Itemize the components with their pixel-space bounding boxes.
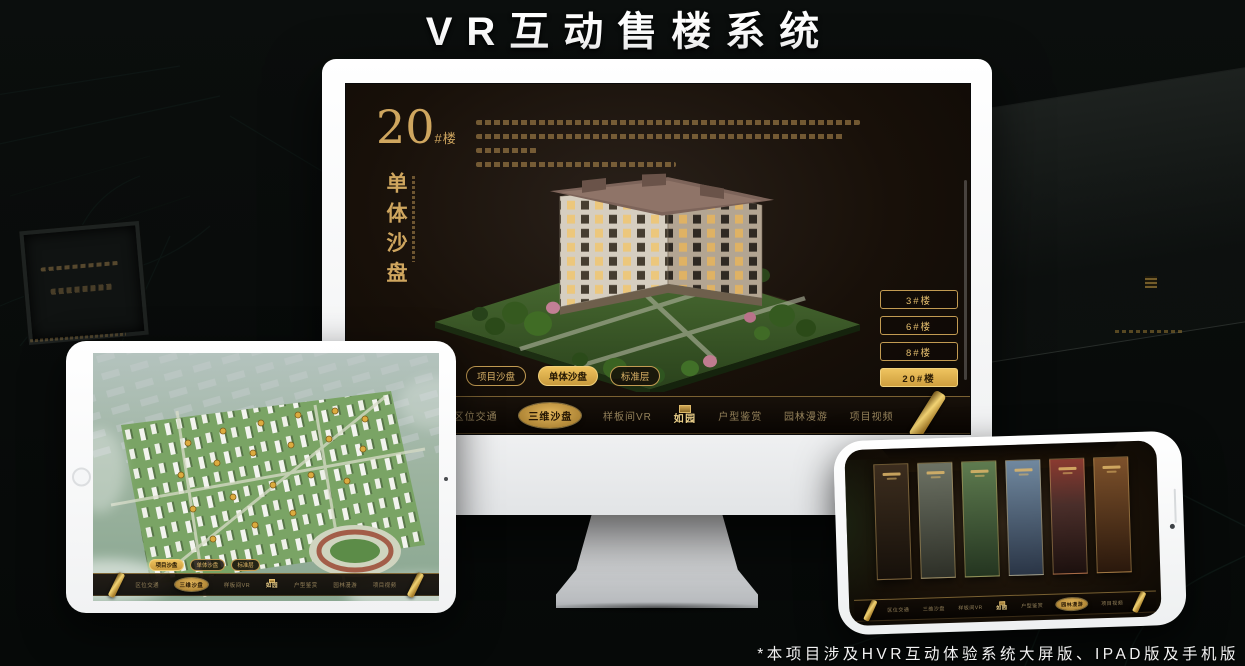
screen-reflection: [964, 180, 967, 380]
phone-brand-logo: 如园: [996, 601, 1008, 612]
mode-title-vertical: 单体沙盘: [380, 172, 410, 291]
tablet-nav-item-floorplan[interactable]: 户型鉴赏: [294, 581, 318, 589]
card-caption-decor: [974, 475, 984, 477]
logo-text: 如园: [266, 584, 278, 590]
tablet-subtab-standard-floor[interactable]: 标准层: [231, 559, 261, 571]
phone-camera-icon: [1170, 524, 1175, 529]
tablet-nav-item-3d-sandbox[interactable]: 三维沙盘: [175, 578, 208, 591]
monitor-stand-shadow: [538, 602, 776, 614]
phone-nav-item-3d-sandbox[interactable]: 三维沙盘: [923, 605, 945, 613]
phone-nav-item-project-video[interactable]: 项目视频: [1101, 599, 1123, 607]
description-line: [476, 134, 845, 139]
monitor-nav-item-garden-tour[interactable]: 园林漫游: [784, 408, 828, 423]
tablet-nav-item-showroom-vr[interactable]: 样板间VR: [224, 581, 250, 589]
tablet-screen: 项目沙盘 单体沙盘 标准层 区位交通 三维沙盘 样板间VR 如园 户型鉴赏 园林…: [93, 353, 439, 601]
footnote-text: *本项目涉及HVR互动体验系统大屏版、IPAD版及手机版: [757, 642, 1239, 664]
subtab-project-sandbox[interactable]: 项目沙盘: [466, 366, 526, 386]
tablet-scroll-handle-left-icon[interactable]: [107, 571, 125, 597]
logo-seal-icon: [679, 405, 691, 414]
card-caption-decor: [926, 471, 944, 474]
card-caption-decor: [930, 476, 940, 478]
card-caption-decor: [1062, 472, 1072, 474]
panorama-card-kitchen[interactable]: [917, 462, 956, 579]
building-3d-model[interactable]: [410, 142, 880, 392]
panorama-card-building[interactable]: [1005, 459, 1044, 576]
stadium: [309, 525, 401, 577]
card-caption-decor: [1018, 473, 1028, 475]
phone-scroll-handle-left-icon[interactable]: [864, 599, 878, 622]
aerial-masterplan-view[interactable]: [93, 353, 439, 601]
panorama-card-facade[interactable]: [1049, 458, 1088, 575]
subtab-single-sandbox[interactable]: 单体沙盘: [538, 366, 598, 386]
monitor-stand: [556, 512, 758, 608]
card-caption-decor: [882, 472, 900, 475]
floor-button-3[interactable]: 3#楼: [880, 290, 958, 309]
monitor-subtab-row: 项目沙盘 单体沙盘 标准层: [466, 366, 660, 386]
promo-canvas: VR互动售楼系统 20#楼 单体沙盘: [0, 0, 1245, 666]
tablet-nav-item-location-traffic[interactable]: 区位交通: [135, 581, 159, 589]
phone-nav-item-location-traffic[interactable]: 区位交通: [887, 606, 909, 614]
card-caption-decor: [1106, 471, 1116, 473]
tablet-camera-icon: [444, 477, 448, 481]
phone-nav-item-garden-tour[interactable]: 园林漫游: [1056, 598, 1087, 611]
tablet-subtab-row: 项目沙盘 单体沙盘 标准层: [149, 559, 260, 571]
panorama-card-shelves[interactable]: [1093, 456, 1132, 573]
tablet-subtab-single-sandbox[interactable]: 单体沙盘: [190, 559, 225, 571]
card-caption-decor: [886, 478, 896, 480]
panorama-card-interior[interactable]: [873, 463, 912, 580]
background-map-grid: [0, 56, 330, 346]
phone-screen: 区位交通 三维沙盘 样板间VR 如园 户型鉴赏 园林漫游 项目视频: [844, 440, 1161, 626]
floor-button-group: 3#楼 6#楼 8#楼 20#楼: [880, 290, 958, 387]
monitor-scroll-handle-icon[interactable]: [908, 390, 947, 435]
tablet-subtab-project-sandbox[interactable]: 项目沙盘: [149, 559, 184, 571]
card-caption-decor: [1058, 467, 1076, 470]
phone-speaker-slot: [1173, 489, 1177, 523]
background-gold-seal-icon: [1145, 276, 1157, 288]
tablet-home-button[interactable]: [72, 468, 91, 487]
logo-text: 如园: [996, 606, 1008, 612]
monitor-nav-item-floorplan[interactable]: 户型鉴赏: [718, 408, 762, 423]
phone-nav-item-showroom-vr[interactable]: 样板间VR: [958, 603, 983, 611]
monitor-brand-logo: 如园: [674, 405, 697, 426]
phone-device: 区位交通 三维沙盘 样板间VR 如园 户型鉴赏 园林漫游 项目视频: [833, 431, 1187, 636]
floor-button-6[interactable]: 6#楼: [880, 316, 958, 335]
tablet-device: 项目沙盘 单体沙盘 标准层 区位交通 三维沙盘 样板间VR 如园 户型鉴赏 园林…: [66, 341, 456, 613]
monitor-nav-item-3d-sandbox[interactable]: 三维沙盘: [519, 403, 581, 428]
description-line: [476, 120, 860, 125]
card-caption-decor: [970, 470, 988, 473]
floor-button-20[interactable]: 20#楼: [880, 368, 958, 387]
floor-button-8[interactable]: 8#楼: [880, 342, 958, 361]
tablet-brand-logo: 如园: [266, 579, 278, 590]
tablet-nav-item-project-video[interactable]: 项目视频: [373, 581, 397, 589]
monitor-nav-item-showroom-vr[interactable]: 样板间VR: [603, 408, 652, 423]
monitor-nav-item-location-traffic[interactable]: 区位交通: [454, 408, 498, 423]
background-gold-caption: [1115, 330, 1185, 333]
monitor-nav-item-project-video[interactable]: 项目视频: [850, 408, 894, 423]
background-plaque: [19, 221, 148, 345]
phone-scroll-handle-right-icon[interactable]: [1132, 591, 1146, 614]
tablet-scroll-handle-right-icon[interactable]: [407, 571, 425, 597]
tablet-nav-bar: 区位交通 三维沙盘 样板间VR 如园 户型鉴赏 园林漫游 项目视频: [93, 573, 439, 596]
subtab-standard-floor[interactable]: 标准层: [610, 366, 660, 386]
phone-nav-item-floorplan[interactable]: 户型鉴赏: [1021, 601, 1043, 609]
tablet-nav-item-garden-tour[interactable]: 园林漫游: [333, 581, 357, 589]
logo-text: 如园: [674, 415, 697, 426]
page-title: VR互动售楼系统: [0, 0, 1245, 56]
card-caption-decor: [1102, 466, 1120, 469]
panorama-card-row: [873, 456, 1132, 580]
panorama-card-garden[interactable]: [961, 460, 1000, 577]
card-caption-decor: [1014, 468, 1032, 471]
